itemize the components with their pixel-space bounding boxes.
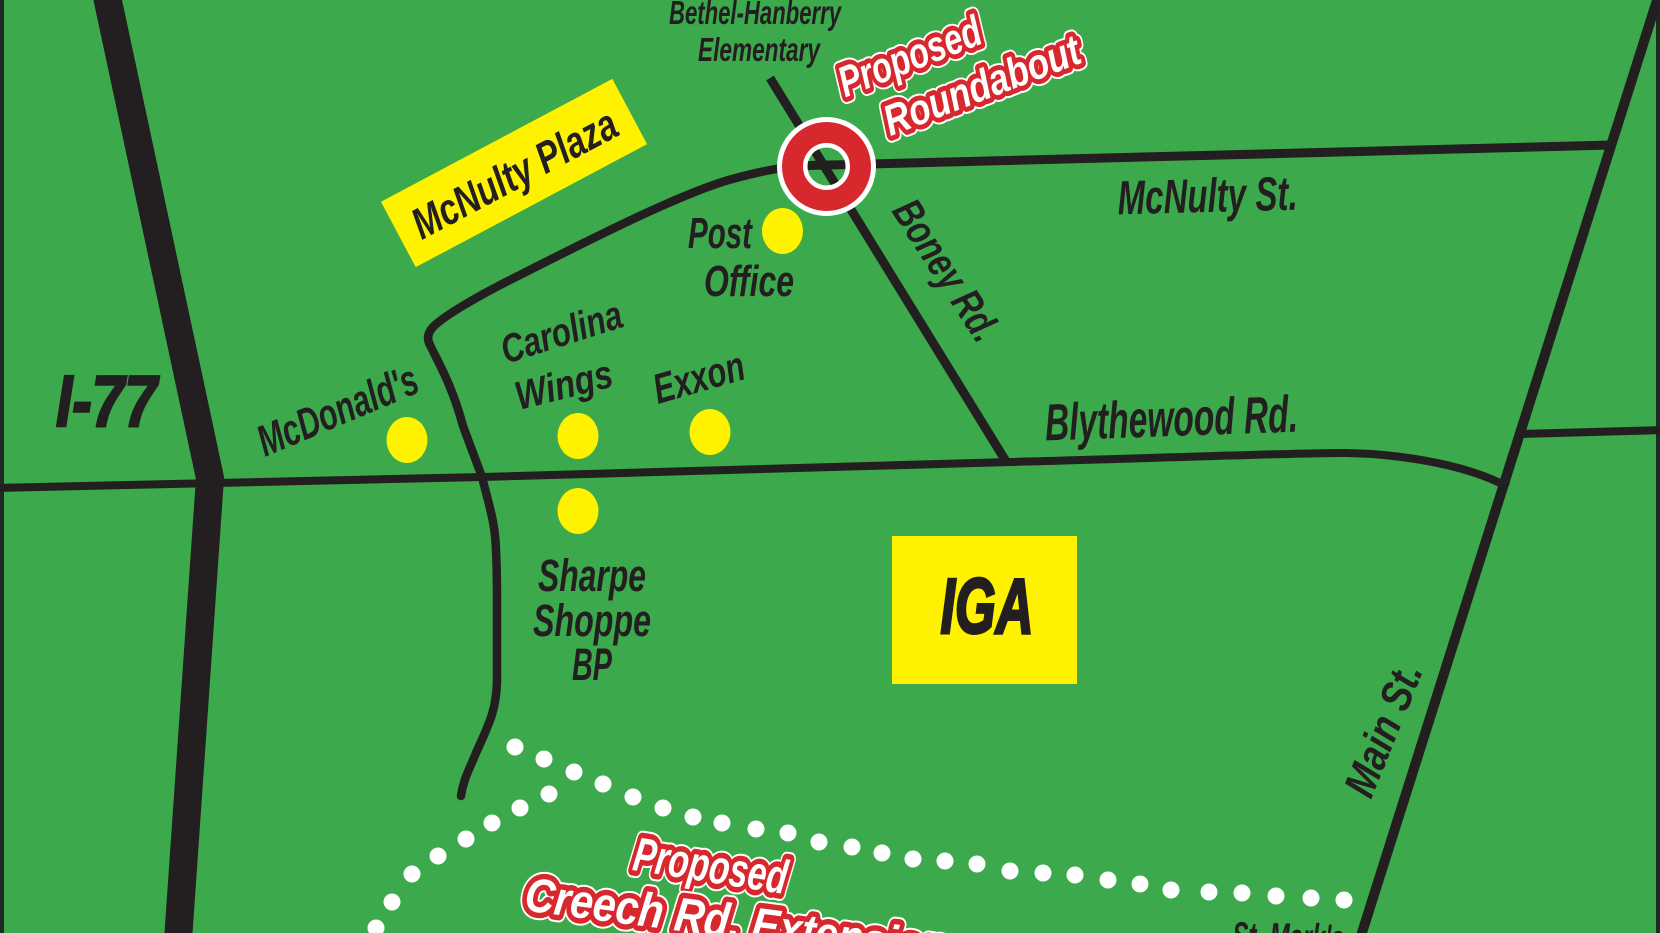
svg-text:IGA: IGA: [941, 562, 1034, 650]
svg-text:St. Mark's: St. Mark's: [1232, 915, 1345, 933]
svg-text:BP: BP: [572, 639, 613, 690]
svg-text:Bethel-Hanberry: Bethel-Hanberry: [669, 0, 842, 31]
svg-text:McNulty St.: McNulty St.: [1117, 168, 1298, 226]
svg-text:Sharpe: Sharpe: [538, 550, 646, 601]
svg-text:Post: Post: [688, 209, 754, 258]
svg-text:Office: Office: [704, 257, 794, 306]
svg-text:I-77: I-77: [56, 362, 159, 442]
svg-text:Elementary: Elementary: [698, 31, 821, 68]
svg-text:Blythewood Rd.: Blythewood Rd.: [1044, 386, 1299, 453]
